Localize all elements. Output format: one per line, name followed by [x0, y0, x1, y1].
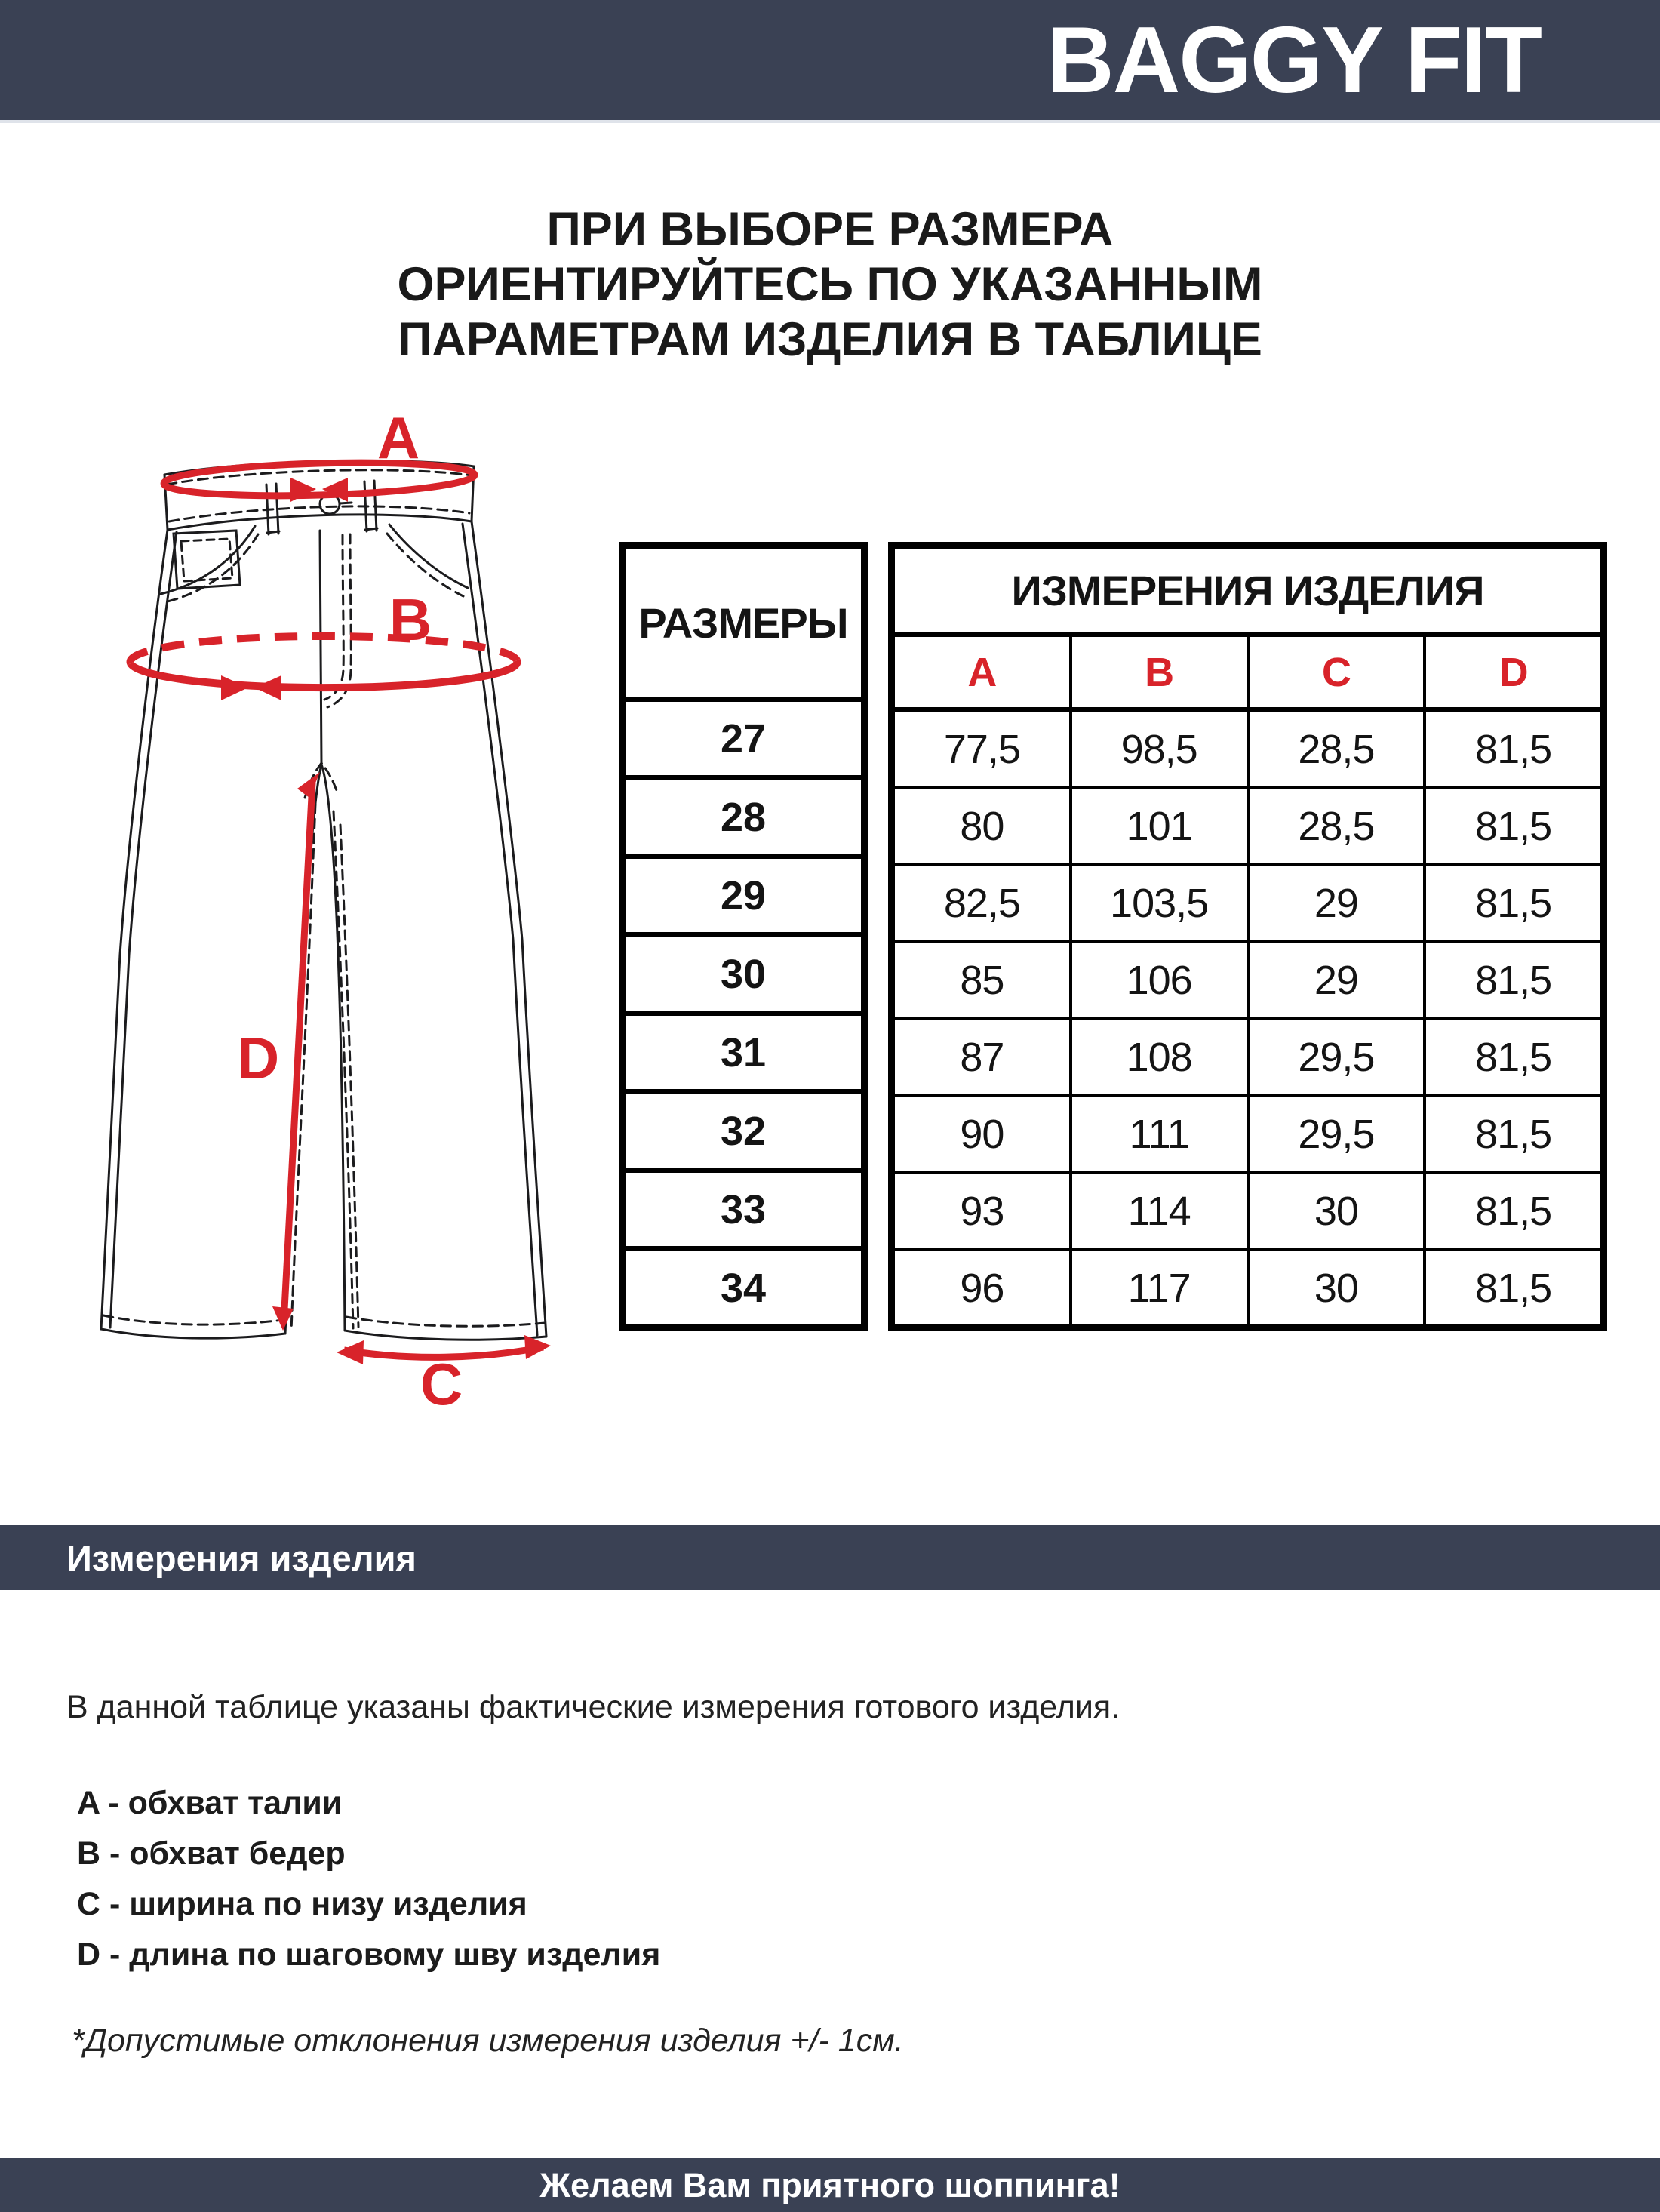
measure-letter-c: C [1247, 637, 1424, 707]
bottom-bar: Желаем Вам приятного шоппинга! [0, 2158, 1660, 2212]
section-title-bar: Измерения изделия [0, 1525, 1660, 1590]
cell-c: 29 [1247, 866, 1424, 940]
cell-a: 90 [895, 1097, 1069, 1171]
hem-arrow-left-icon [337, 1340, 364, 1364]
size-table: РАЗМЕРЫ 27 28 29 30 31 32 33 34 ИЗМЕРЕНИ… [619, 542, 1607, 1331]
cell-d: 81,5 [1423, 1097, 1600, 1171]
cell-a: 85 [895, 943, 1069, 1017]
size-row-label: 31 [626, 1011, 861, 1089]
cell-d: 81,5 [1423, 866, 1600, 940]
size-row-label: 28 [626, 775, 861, 854]
jeans-measure-diagram: A B D C [60, 411, 589, 1483]
hip-arrow-left-icon [221, 675, 248, 700]
table-row: 90 111 29,5 81,5 [895, 1094, 1600, 1171]
table-row: 82,5 103,5 29 81,5 [895, 863, 1600, 940]
cell-a: 87 [895, 1020, 1069, 1094]
inseam-label: D [237, 1025, 279, 1091]
cell-c: 30 [1247, 1251, 1424, 1324]
table-row: 85 106 29 81,5 [895, 940, 1600, 1017]
intro-heading: ПРИ ВЫБОРЕ РАЗМЕРА ОРИЕНТИРУЙТЕСЬ ПО УКА… [0, 202, 1660, 368]
left-hem-stitch [103, 1315, 283, 1324]
waistband-bottom-edge [168, 515, 472, 530]
cell-c: 30 [1247, 1174, 1424, 1248]
size-row-label: 27 [626, 697, 861, 775]
cell-a: 80 [895, 789, 1069, 863]
fit-title: BAGGY FIT [1047, 14, 1541, 107]
table-row: 80 101 28,5 81,5 [895, 786, 1600, 863]
cell-c: 28,5 [1247, 789, 1424, 863]
hip-label: B [389, 586, 432, 653]
legend-item-c: C - ширина по низу изделия [77, 1879, 660, 1930]
size-row-label: 29 [626, 854, 861, 932]
hem-label: C [420, 1351, 463, 1417]
cell-a: 82,5 [895, 866, 1069, 940]
right-hem-stitch [346, 1317, 545, 1326]
inseam-measure-line [284, 783, 312, 1309]
intro-heading-line-2: ОРИЕНТИРУЙТЕСЬ ПО УКАЗАННЫМ [0, 257, 1660, 312]
legend-item-b: B - обхват бедер [77, 1829, 660, 1879]
hip-measure-ellipse-front [131, 660, 517, 688]
legend-item-d: D - длина по шаговому шву изделия [77, 1930, 660, 1980]
size-guide-page: BAGGY FIT ПРИ ВЫБОРЕ РАЗМЕРА ОРИЕНТИРУЙТ… [0, 0, 1660, 2212]
legend-item-a: A - обхват талии [77, 1778, 660, 1829]
measure-letter-a: A [895, 637, 1069, 707]
table-row: 96 117 30 81,5 [895, 1248, 1600, 1324]
cell-d: 81,5 [1423, 1251, 1600, 1324]
cell-b: 117 [1069, 1251, 1247, 1324]
intro-heading-line-1: ПРИ ВЫБОРЕ РАЗМЕРА [0, 202, 1660, 257]
cell-d: 81,5 [1423, 789, 1600, 863]
hip-measure-ellipse-back [131, 636, 517, 663]
right-hem [345, 1331, 546, 1340]
table-row: 77,5 98,5 28,5 81,5 [895, 712, 1600, 786]
measure-letter-row: A B C D [895, 637, 1600, 712]
size-row-label: 34 [626, 1246, 861, 1324]
button-shank [340, 503, 352, 503]
cell-c: 28,5 [1247, 712, 1424, 786]
waist-label: A [377, 411, 420, 471]
size-row-label: 33 [626, 1168, 861, 1246]
cell-b: 111 [1069, 1097, 1247, 1171]
cell-d: 81,5 [1423, 1174, 1600, 1248]
table-row: 87 108 29,5 81,5 [895, 1017, 1600, 1094]
hip-arrow-right-icon [254, 675, 281, 700]
belt-loop-right [364, 481, 377, 531]
intro-heading-line-3: ПАРАМЕТРАМ ИЗДЕЛИЯ В ТАБЛИЦЕ [0, 312, 1660, 368]
table-row: 93 114 30 81,5 [895, 1171, 1600, 1248]
cell-b: 103,5 [1069, 866, 1247, 940]
measure-marks: A B D C [131, 411, 551, 1417]
tolerance-note: *Допустимые отклонения измерения изделия… [72, 2023, 904, 2060]
sizes-column: РАЗМЕРЫ 27 28 29 30 31 32 33 34 [619, 542, 868, 1331]
waistband-bottom-stitch [169, 506, 469, 521]
cell-c: 29 [1247, 943, 1424, 1017]
right-pocket-curve [389, 525, 468, 588]
measure-letter-b: B [1069, 637, 1247, 707]
cell-b: 101 [1069, 789, 1247, 863]
measurements-header: ИЗМЕРЕНИЯ ИЗДЕЛИЯ [895, 549, 1600, 637]
cell-d: 81,5 [1423, 712, 1600, 786]
fly-stitch-2 [327, 534, 351, 707]
farewell-message: Желаем Вам приятного шоппинга! [539, 2166, 1120, 2205]
section-title: Измерения изделия [66, 1537, 417, 1579]
measurements-block: ИЗМЕРЕНИЯ ИЗДЕЛИЯ A B C D 77,5 98,5 28,5… [888, 542, 1607, 1331]
cell-c: 29,5 [1247, 1020, 1424, 1094]
size-row-label: 30 [626, 932, 861, 1011]
cell-a: 93 [895, 1174, 1069, 1248]
center-front-seam [320, 531, 321, 765]
cell-b: 114 [1069, 1174, 1247, 1248]
cell-c: 29,5 [1247, 1097, 1424, 1171]
jeans-outline [101, 460, 546, 1340]
cell-d: 81,5 [1423, 943, 1600, 1017]
fly-stitch-1 [324, 535, 343, 700]
top-bar: BAGGY FIT [0, 0, 1660, 123]
cell-b: 108 [1069, 1020, 1247, 1094]
measure-legend: A - обхват талии B - обхват бедер C - ши… [77, 1778, 660, 1980]
table-description: В данной таблице указаны фактические изм… [66, 1687, 1349, 1727]
cell-d: 81,5 [1423, 1020, 1600, 1094]
left-outseam [101, 530, 168, 1329]
cell-b: 98,5 [1069, 712, 1247, 786]
cell-a: 77,5 [895, 712, 1069, 786]
cell-a: 96 [895, 1251, 1069, 1324]
hem-arrow-right-icon [524, 1335, 551, 1359]
size-row-label: 32 [626, 1089, 861, 1168]
inseam-arrow-bottom-icon [272, 1306, 294, 1331]
measure-letter-d: D [1423, 637, 1600, 707]
waist-measure-ellipse [163, 459, 475, 499]
sizes-column-header: РАЗМЕРЫ [626, 549, 861, 697]
cell-b: 106 [1069, 943, 1247, 1017]
left-hem [101, 1329, 285, 1338]
